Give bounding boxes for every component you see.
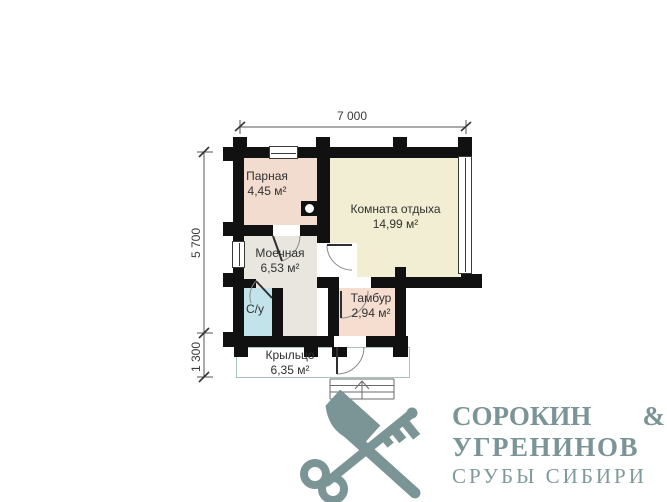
room-label-moechnaya: Моечная 6,53 м² — [238, 246, 322, 276]
wall-segment — [272, 288, 283, 336]
log-end — [472, 274, 482, 288]
brand-name-part: СОРОКИН — [452, 401, 591, 431]
dimension-top-width: 7 000 — [297, 109, 407, 123]
brand-ampersand: & — [643, 401, 666, 431]
room-area: 6,53 м² — [238, 261, 322, 276]
room-area: 6,35 м² — [248, 363, 332, 378]
floor-plan-canvas: Парная 4,45 м² Комната отдыха 14,99 м² М… — [0, 0, 667, 502]
room-label-su: С/у — [238, 302, 272, 317]
dimension-porch-depth: 1 300 — [189, 335, 203, 379]
wall-segment — [317, 147, 330, 243]
log-end — [393, 347, 408, 357]
log-end — [393, 137, 407, 147]
brand-text: СОРОКИН & УГРЕНИНОВ СРУБЫ СИБИРИ — [452, 401, 665, 490]
room-area: 14,99 м² — [330, 217, 461, 232]
window — [269, 146, 298, 159]
room-name: Моечная — [238, 246, 322, 261]
log-end — [316, 137, 330, 147]
log-end — [233, 137, 247, 147]
room-label-komnata-otdyha: Комната отдыха 14,99 м² — [330, 202, 461, 232]
room-area: 2,94 м² — [342, 306, 400, 321]
dimension-side-height: 5 700 — [189, 217, 203, 269]
brand-name-line2: УГРЕНИНОВ — [452, 431, 665, 463]
wall-segment — [366, 336, 408, 347]
axe-key-emblem — [293, 390, 445, 502]
log-end — [223, 147, 233, 161]
room-name: Крыльцо — [248, 348, 332, 363]
log-end — [223, 273, 233, 287]
log-end — [234, 347, 248, 357]
room-label-krylco: Крыльцо 6,35 м² — [248, 348, 332, 378]
wall-segment — [317, 277, 339, 288]
log-end — [395, 267, 406, 277]
room-name: Тамбур — [342, 291, 400, 306]
wall-segment — [233, 225, 273, 236]
room-name: Парная — [229, 169, 305, 184]
log-end — [332, 347, 347, 357]
room-area: 4,45 м² — [229, 184, 305, 199]
wall-segment — [244, 279, 256, 288]
wall-segment — [233, 336, 334, 347]
room-label-parnaya: Парная 4,45 м² — [229, 169, 305, 199]
log-end — [223, 222, 233, 236]
room-label-tambur: Тамбур 2,94 м² — [342, 291, 400, 321]
brand-tagline: СРУБЫ СИБИРИ — [452, 463, 665, 490]
room-name: С/у — [238, 302, 272, 317]
log-end — [458, 137, 472, 147]
wall-segment — [328, 288, 339, 336]
wall-segment — [371, 277, 472, 288]
log-end — [223, 332, 233, 347]
brand-name-line1: СОРОКИН & — [452, 401, 665, 431]
room-name: Комната отдыха — [330, 202, 461, 217]
doorway-passage-floor — [317, 243, 357, 277]
stove-icon — [301, 201, 317, 216]
